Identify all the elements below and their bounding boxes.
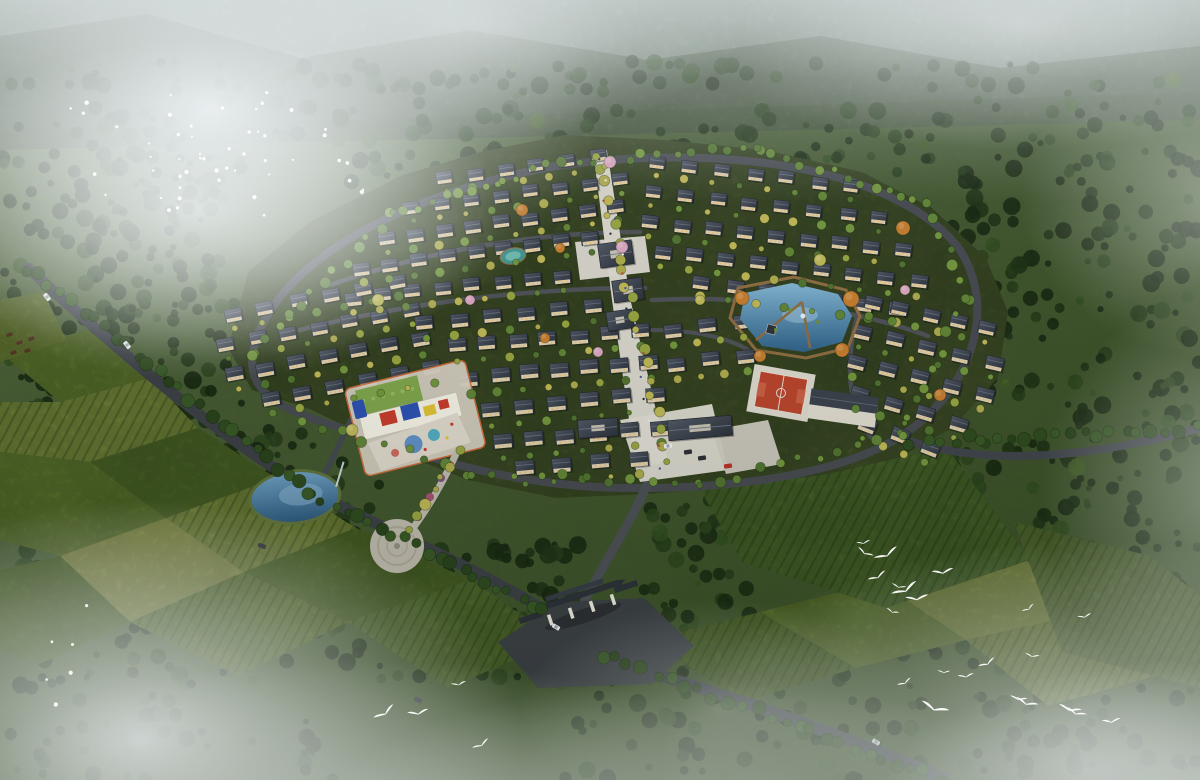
roadside-tree <box>1082 427 1090 435</box>
villa-house <box>462 277 482 293</box>
street-tree <box>856 344 862 350</box>
villa-house <box>584 298 605 315</box>
street-tree <box>680 175 689 184</box>
roadside-tree <box>655 407 666 418</box>
street-tree <box>770 275 779 284</box>
roadside-tree <box>737 701 747 711</box>
street-tree <box>648 203 653 208</box>
villa-house <box>876 271 896 287</box>
villa-house <box>438 248 458 264</box>
roadside-tree <box>362 234 368 240</box>
street-tree <box>888 317 897 326</box>
street-tree <box>860 436 865 441</box>
roadside-tree <box>412 538 421 547</box>
villa-house <box>579 358 601 375</box>
street-tree <box>545 173 553 181</box>
villa-house <box>570 330 591 346</box>
roadside-tree <box>415 206 422 213</box>
roadside-tree <box>821 733 834 746</box>
villa-house <box>467 168 486 184</box>
tree-highlight <box>697 296 702 301</box>
street-tree <box>899 261 906 268</box>
street-tree <box>460 237 469 246</box>
tree-highlight <box>348 426 353 431</box>
roadside-tree <box>1131 428 1141 438</box>
street-tree <box>740 333 748 341</box>
street-tree <box>848 372 857 381</box>
pedestrian <box>658 445 660 447</box>
street-tree <box>921 459 929 467</box>
street-tree <box>645 233 651 239</box>
roadside-tree <box>298 417 307 426</box>
street-tree <box>702 240 708 246</box>
roadside-tree <box>891 760 904 773</box>
street-tree <box>764 186 770 192</box>
roadside-tree <box>385 531 396 542</box>
roadside-tree <box>492 586 500 594</box>
villa-house <box>482 308 503 325</box>
pedestrian <box>621 272 623 274</box>
street-tree <box>505 352 514 361</box>
roadside-tree <box>499 177 506 184</box>
street-tree <box>714 269 721 276</box>
roadside-tree <box>783 718 792 727</box>
street-tree <box>817 220 827 230</box>
street-tree <box>324 400 329 405</box>
villa-house <box>477 335 498 351</box>
roadside-tree <box>639 344 650 355</box>
villa-house <box>514 399 536 416</box>
street-tree <box>857 287 862 292</box>
villa-house <box>380 258 400 274</box>
roadside-tree <box>1017 433 1031 447</box>
roadside-tree <box>855 441 862 448</box>
street-tree <box>467 389 477 399</box>
roadside-tree <box>599 175 610 186</box>
street-tree <box>501 455 507 461</box>
street-tree <box>506 325 515 334</box>
roadside-tree <box>156 365 168 377</box>
roadside-tree <box>956 277 963 284</box>
villa-house <box>433 197 452 212</box>
street-tree <box>539 199 549 209</box>
roadside-tree <box>285 310 294 319</box>
street-tree <box>676 206 683 213</box>
roadside-tree <box>164 377 175 388</box>
street-tree <box>619 191 625 197</box>
roadside-tree <box>871 435 882 446</box>
street-tree <box>635 470 644 479</box>
street-tree <box>571 381 579 389</box>
villa-house <box>713 163 732 178</box>
roadside-tree <box>377 224 387 234</box>
street-tree <box>385 275 393 283</box>
roadside-tree <box>721 696 735 710</box>
roadside-tree <box>406 445 414 453</box>
roadside-tree <box>897 193 906 202</box>
roadside-tree <box>905 764 914 773</box>
roadside-tree <box>1008 435 1016 443</box>
pedestrian <box>598 158 600 160</box>
roadside-tree <box>686 148 695 157</box>
street-tree <box>411 218 416 223</box>
roadside-tree <box>433 486 439 492</box>
street-tree <box>705 209 711 215</box>
street-tree <box>507 291 516 300</box>
villa-house <box>640 214 660 230</box>
villa-house <box>747 168 766 183</box>
street-tree <box>232 325 238 331</box>
street-tree <box>950 398 959 407</box>
roadside-tree <box>333 503 341 511</box>
villa-house <box>701 351 722 368</box>
car-windshield <box>666 444 669 448</box>
roadside-tree <box>643 357 653 367</box>
roadside-tree <box>645 391 654 400</box>
roadside-tree <box>420 456 427 463</box>
street-tree <box>489 423 495 429</box>
villa-house <box>406 228 426 244</box>
villa-house <box>515 459 537 476</box>
villa-house <box>467 244 487 260</box>
roadside-tree <box>597 651 610 664</box>
roadside-tree <box>535 603 547 615</box>
villa-house <box>716 252 736 268</box>
villa-house <box>579 203 599 219</box>
roadside-tree <box>833 448 842 457</box>
roadside-tree <box>946 259 957 270</box>
street-tree <box>882 350 888 356</box>
roadside-tree <box>604 478 613 487</box>
roadside-tree <box>1161 429 1170 438</box>
roadside-tree <box>1050 429 1059 438</box>
roadside-tree <box>794 454 800 460</box>
street-tree <box>486 261 495 270</box>
pedestrian <box>659 467 661 469</box>
roadside-tree <box>539 472 546 479</box>
roadside-tree <box>924 435 935 446</box>
street-tree <box>411 272 418 279</box>
roadside-tree <box>195 399 205 409</box>
villa-house <box>414 315 435 332</box>
roadside-tree <box>1143 424 1157 438</box>
roadside-tree <box>832 166 838 172</box>
street-tree <box>852 405 860 413</box>
roadside-tree <box>815 166 824 175</box>
courtyard-house <box>577 418 620 440</box>
lily-pad <box>816 320 820 324</box>
roadside-tree <box>935 232 942 239</box>
roadside-tree <box>935 438 944 447</box>
pedestrian <box>614 218 616 220</box>
roadside-tree <box>1034 428 1047 441</box>
villa-house <box>555 429 577 446</box>
street-tree <box>492 387 502 397</box>
roadside-tree <box>424 549 436 561</box>
roadside-tree <box>55 287 64 296</box>
roadside-tree <box>1193 421 1200 430</box>
villa-house <box>772 200 791 215</box>
street-tree <box>631 442 639 450</box>
villa-house <box>523 430 545 447</box>
villa-house <box>547 395 569 412</box>
street-tree <box>698 373 704 379</box>
pedestrian <box>605 179 607 181</box>
roadside-tree <box>913 395 921 403</box>
street-tree <box>828 283 834 289</box>
street-tree <box>454 297 462 305</box>
roadside-tree <box>173 382 181 390</box>
street-tree <box>865 312 874 321</box>
fountain <box>801 314 806 319</box>
street-tree <box>377 389 385 397</box>
villa-house <box>766 230 786 246</box>
roadside-tree <box>783 155 791 163</box>
roadside-tree <box>320 277 331 288</box>
street-tree <box>780 303 789 312</box>
villa-house <box>434 281 454 297</box>
roadside-tree <box>655 672 665 682</box>
roadside-tree <box>430 199 436 205</box>
roadside-tree <box>381 441 387 447</box>
roadside-tree <box>139 357 153 371</box>
villa-house <box>519 363 541 380</box>
roadside-tree <box>206 410 219 423</box>
roadside-tree <box>664 459 670 465</box>
villa-house <box>550 207 570 223</box>
roadside-tree <box>453 188 464 199</box>
roadside-tree <box>692 683 701 692</box>
street-tree <box>535 290 541 296</box>
roadside-tree <box>483 183 490 190</box>
street-tree <box>409 244 418 253</box>
roadside-tree <box>306 288 312 294</box>
roadside-tree <box>804 723 815 734</box>
villa-house <box>910 274 930 290</box>
street-tree <box>463 211 468 216</box>
street-tree <box>481 356 487 362</box>
roadside-tree <box>344 260 353 269</box>
street-tree <box>520 177 528 185</box>
street-tree <box>561 287 567 293</box>
roadside-tree <box>627 156 635 164</box>
roadside-tree <box>723 146 732 155</box>
street-tree <box>288 375 296 383</box>
roadside-tree <box>832 736 843 747</box>
villa-house <box>494 275 514 291</box>
roadside-tree <box>768 714 777 723</box>
roadside-tree <box>1172 425 1185 438</box>
roadside-tree <box>260 449 274 463</box>
street-tree <box>925 426 934 435</box>
villa-house <box>611 388 633 405</box>
lily-pad <box>774 328 778 332</box>
roadside-tree <box>583 473 591 481</box>
street-tree <box>709 180 715 186</box>
street-tree <box>454 358 460 364</box>
villa-house <box>676 189 695 204</box>
plaza-center <box>394 543 400 549</box>
street-tree <box>674 375 682 383</box>
roadside-tree <box>467 186 477 196</box>
street-tree <box>926 393 933 400</box>
street-tree <box>593 194 598 199</box>
roadside-tree <box>1090 431 1102 443</box>
street-tree <box>226 355 232 361</box>
villa-house <box>549 362 571 379</box>
roadside-tree <box>225 423 238 436</box>
street-tree <box>657 263 663 269</box>
roadside-tree <box>976 436 986 446</box>
villa-house <box>492 213 512 229</box>
roadside-tree <box>922 199 931 208</box>
villa-house <box>491 367 513 384</box>
roadside-tree <box>354 242 365 253</box>
street-tree <box>527 452 534 459</box>
villa-house <box>685 247 705 263</box>
tree-highlight <box>542 334 547 339</box>
tree-highlight <box>618 243 623 248</box>
roadside-tree <box>610 651 620 661</box>
pedestrian <box>642 398 644 400</box>
roadside-tree <box>740 145 747 152</box>
street-tree <box>670 341 678 349</box>
roadside-tree <box>302 488 314 500</box>
roadside-tree <box>363 518 371 526</box>
roadside-tree <box>886 187 893 194</box>
roadside-tree <box>398 206 407 215</box>
roadside-tree <box>488 471 495 478</box>
villa-house <box>619 422 641 439</box>
roadside-tree <box>412 511 422 521</box>
street-tree <box>911 322 920 331</box>
roadside-tree <box>672 480 678 486</box>
roadside-tree <box>876 756 886 766</box>
tree-highlight <box>557 244 562 249</box>
street-tree <box>875 380 881 386</box>
roadside-tree <box>1103 426 1114 437</box>
roadside-tree <box>247 350 258 361</box>
street-tree <box>585 347 592 354</box>
street-tree <box>798 279 807 288</box>
street-tree <box>553 450 559 456</box>
street-tree <box>295 404 304 413</box>
roadside-tree <box>478 577 491 590</box>
street-tree <box>843 255 850 262</box>
roadside-tree <box>297 301 307 311</box>
street-tree <box>537 255 545 263</box>
roadside-tree <box>89 312 99 322</box>
villa-house <box>691 275 711 291</box>
street-tree <box>351 395 358 402</box>
villa-house <box>436 223 456 239</box>
tree-highlight <box>936 391 941 396</box>
street-tree <box>394 291 404 301</box>
villa-house <box>736 225 756 241</box>
villa-house <box>517 306 538 323</box>
street-tree <box>760 214 770 224</box>
street-tree <box>982 339 987 344</box>
roadside-tree <box>939 350 947 358</box>
pedestrian <box>642 352 644 354</box>
street-tree <box>385 250 391 256</box>
street-tree <box>535 324 540 329</box>
villa-house <box>840 208 859 223</box>
villa-house <box>579 391 601 408</box>
street-tree <box>434 240 444 250</box>
roadside-tree <box>556 156 567 167</box>
street-tree <box>367 361 374 368</box>
roadside-tree <box>604 196 614 206</box>
villa-house <box>704 221 724 237</box>
street-tree <box>976 405 984 413</box>
pedestrian <box>640 376 642 378</box>
roadside-tree <box>443 556 457 570</box>
tree-highlight <box>816 256 821 261</box>
roadside-tree <box>628 292 638 302</box>
villa-house <box>524 272 544 288</box>
street-tree <box>759 246 764 251</box>
street-tree <box>605 444 613 452</box>
roadside-tree <box>356 437 367 448</box>
street-tree <box>909 356 915 362</box>
roadside-tree <box>952 439 961 448</box>
villa-house <box>805 204 824 219</box>
street-tree <box>672 235 682 245</box>
street-tree <box>520 386 526 392</box>
street-tree <box>580 448 586 454</box>
villa-house <box>509 334 530 350</box>
roadside-tree <box>733 475 741 483</box>
street-tree <box>516 420 522 426</box>
tree-highlight <box>898 223 904 229</box>
street-tree <box>596 379 604 387</box>
street-tree <box>847 196 853 202</box>
roadside-tree <box>675 151 682 158</box>
street-tree <box>717 336 725 344</box>
street-tree <box>693 338 701 346</box>
street-tree <box>733 213 738 218</box>
tree-highlight <box>606 158 611 163</box>
villa-house <box>862 240 882 256</box>
roadside-tree <box>260 334 269 343</box>
roadside-tree <box>292 474 306 488</box>
roadside-tree <box>653 150 661 158</box>
street-tree <box>428 300 437 309</box>
aerial-village-rendering <box>0 0 1200 780</box>
street-tree <box>818 191 827 200</box>
street-tree <box>538 227 545 234</box>
street-tree <box>590 318 597 325</box>
roadside-tree <box>406 526 413 533</box>
roadside-tree <box>511 473 517 479</box>
street-tree <box>563 224 570 231</box>
roadside-tree <box>468 572 478 582</box>
roadside-tree <box>242 436 252 446</box>
street-tree <box>809 309 814 314</box>
street-tree <box>236 386 242 392</box>
roadside-tree <box>795 162 804 171</box>
roadside-tree <box>705 693 717 705</box>
street-tree <box>960 367 969 376</box>
roadside-tree <box>928 213 938 223</box>
roadside-tree <box>628 311 639 322</box>
villa-house <box>552 182 571 197</box>
street-tree <box>900 386 907 393</box>
villa-house <box>493 190 512 205</box>
roadside-tree <box>635 149 645 159</box>
tree-highlight <box>467 296 472 301</box>
